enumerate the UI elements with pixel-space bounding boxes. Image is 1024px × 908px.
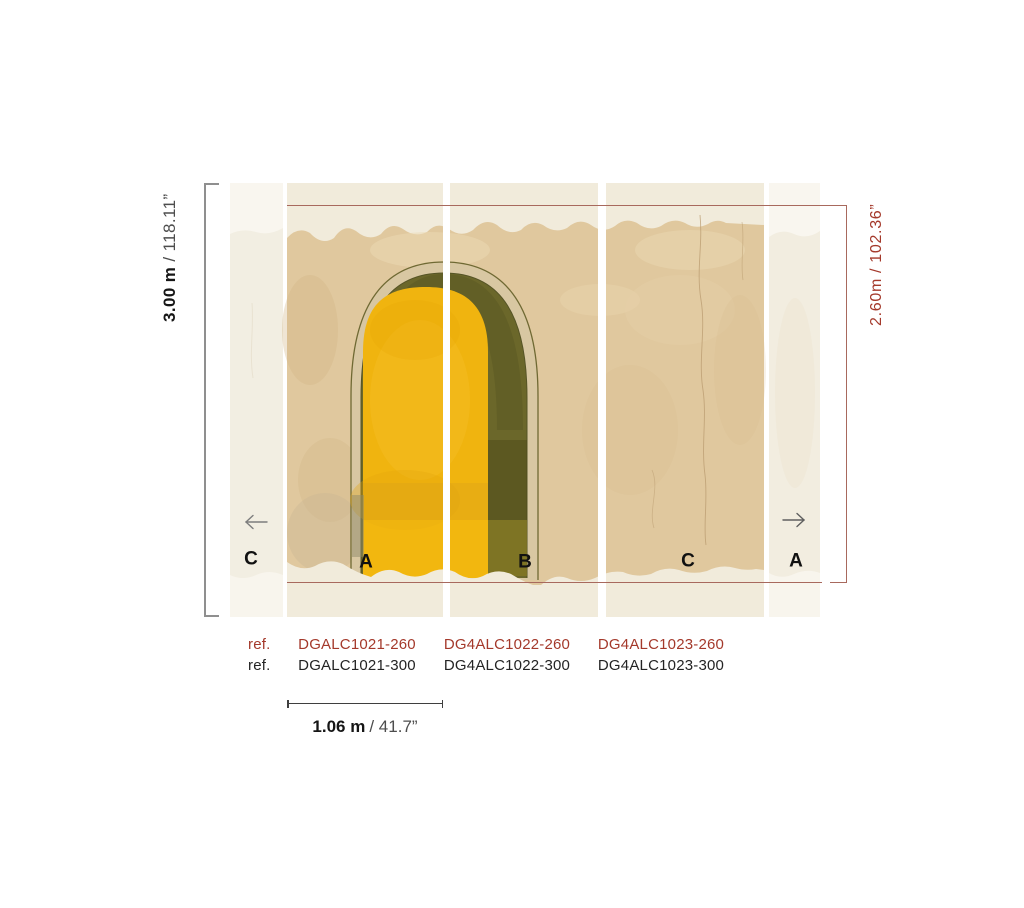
reference-code-260: DGALC1021-260 [287, 636, 427, 653]
dimension-tick-right [442, 700, 444, 708]
panel-letter-c-left: C [244, 550, 258, 569]
arrow-left-icon [243, 513, 269, 531]
reference-row-260: ref. DGALC1021-260 DG4ALC1022-260 DG4ALC… [0, 636, 1024, 654]
panel-divider [598, 183, 606, 617]
ref-label-260: ref. [248, 636, 270, 653]
width-dimension-line [287, 703, 443, 704]
width-metric: 1.06 m [312, 717, 365, 736]
reference-row-300: ref. DGALC1021-300 DG4ALC1022-300 DG4ALC… [0, 657, 1024, 675]
panel-dimension-diagram: 3.00 m/ 118.11” [0, 0, 1024, 908]
reference-code-260: DG4ALC1022-260 [437, 636, 577, 653]
crop-line-bottom [287, 582, 822, 583]
reference-code-300: DG4ALC1022-300 [437, 657, 577, 674]
crop-line-top [287, 205, 830, 206]
reference-code-300: DGALC1021-300 [287, 657, 427, 674]
height-dimension-300-label: 3.00 m/ 118.11” [160, 193, 180, 322]
height-260-imperial: / 102.36” [868, 204, 885, 273]
height-bracket-300 [204, 183, 219, 617]
height-bracket-260 [830, 205, 847, 583]
ref-label-300: ref. [248, 657, 270, 674]
panel-letter-a-right: A [789, 552, 803, 571]
reference-code-300: DG4ALC1023-300 [591, 657, 731, 674]
panel-letter-a: A [359, 553, 373, 572]
panel-divider [443, 183, 450, 617]
panel-letter-b: B [518, 553, 532, 572]
height-260-metric: 2.60m [868, 278, 885, 326]
width-dimension-label: 1.06 m/ 41.7” [287, 717, 443, 737]
reference-code-260: DG4ALC1023-260 [591, 636, 731, 653]
height-300-imperial: / 118.11” [160, 193, 179, 261]
dimension-tick-left [287, 700, 289, 708]
height-dimension-260-label: 2.60m/ 102.36” [868, 204, 886, 326]
arrow-right-icon [781, 511, 807, 529]
width-imperial: / 41.7” [369, 717, 417, 736]
panel-letter-c: C [681, 552, 695, 571]
height-300-metric: 3.00 m [160, 267, 179, 322]
